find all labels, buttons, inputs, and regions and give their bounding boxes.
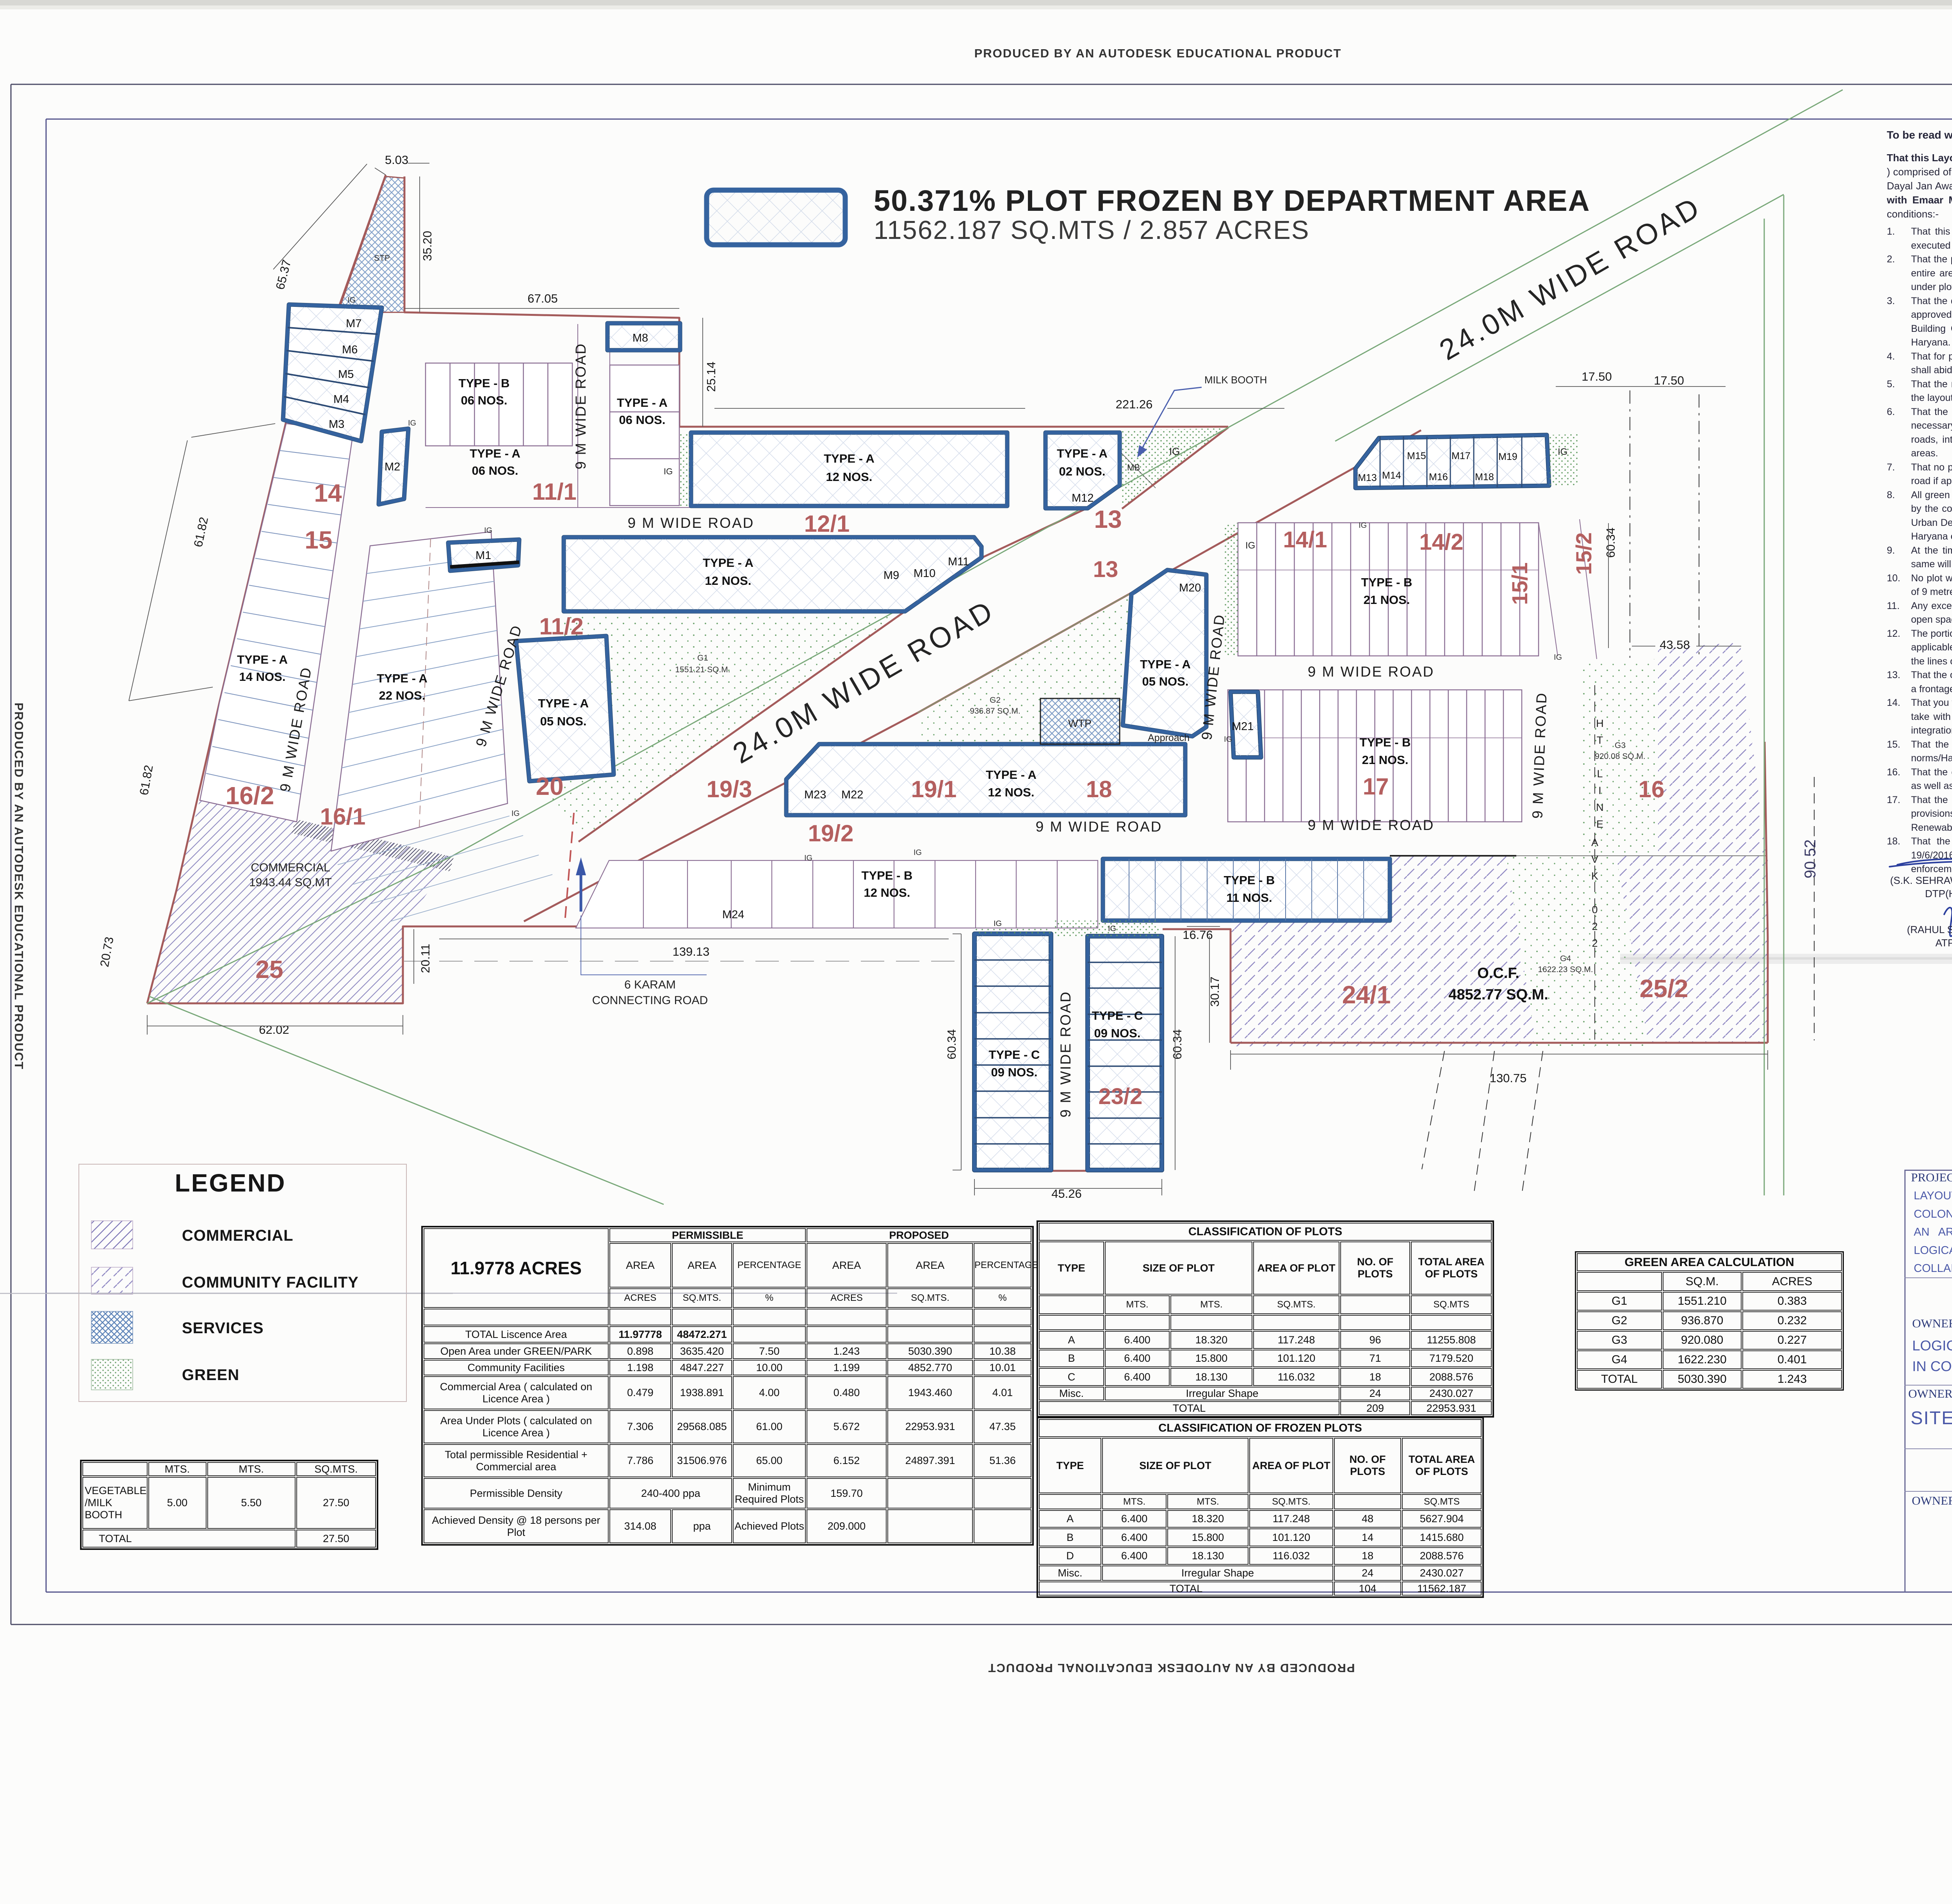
svg-text:45.26: 45.26 [1051,1187,1082,1200]
svg-text:TYPE - A: TYPE - A [703,556,753,570]
svg-text:14/2: 14/2 [1419,529,1464,555]
svg-text:IG: IG [1554,653,1562,662]
svg-text:TYPE - A: TYPE - A [1140,657,1191,671]
svg-text:M20: M20 [1179,582,1201,594]
svg-text:15/1: 15/1 [1507,563,1532,605]
svg-text:TYPE - B: TYPE - B [1224,873,1275,887]
svg-text:V: V [1591,853,1598,865]
svg-text:MILK BOOTH: MILK BOOTH [1204,374,1267,386]
svg-text:TYPE - A: TYPE - A [377,671,427,685]
svg-text:TYPE - B: TYPE - B [862,869,913,882]
svg-text:M4: M4 [333,393,349,406]
svg-text:30.17: 30.17 [1208,976,1222,1007]
svg-text:T: T [1597,734,1603,746]
svg-text:TYPE - A: TYPE - A [538,696,589,710]
svg-text:E: E [1596,818,1603,830]
svg-text:PRODUCED BY AN AUTODESK EDUCAT: PRODUCED BY AN AUTODESK EDUCATIONAL PROD… [988,1661,1355,1675]
svg-text:IG: IG [1108,924,1116,933]
svg-text:16/2: 16/2 [226,782,274,810]
svg-text:05 NOS.: 05 NOS. [540,714,587,728]
svg-text:M12: M12 [1072,492,1094,504]
svg-text:14/1: 14/1 [1283,527,1327,552]
svg-text:TYPE - A: TYPE - A [470,447,520,460]
svg-text:M6: M6 [342,344,358,356]
svg-text:M8: M8 [632,332,648,344]
svg-text:IG: IG [994,919,1002,928]
svg-text:G2: G2 [990,696,1001,705]
svg-text:1551.21 SQ.M.: 1551.21 SQ.M. [675,665,730,674]
svg-text:11 NOS.: 11 NOS. [1226,891,1272,905]
svg-text:18: 18 [1086,776,1112,802]
svg-text:M16: M16 [1429,472,1448,483]
svg-text:TYPE - A: TYPE - A [617,396,668,410]
svg-text:COMMERCIAL: COMMERCIAL [251,861,330,874]
svg-text:M17: M17 [1452,451,1471,461]
svg-text:06 NOS.: 06 NOS. [461,394,508,407]
svg-text:1622.23 SQ.M.: 1622.23 SQ.M. [1538,965,1593,974]
svg-text:9 M WIDE ROAD: 9 M WIDE ROAD [1308,664,1435,680]
svg-text:21 NOS.: 21 NOS. [1362,753,1409,767]
svg-text:12 NOS.: 12 NOS. [705,574,752,588]
svg-text:TYPE - A: TYPE - A [1057,447,1108,460]
svg-text:0: 0 [1592,904,1598,915]
svg-text:9 M WIDE ROAD: 9 M WIDE ROAD [1308,817,1435,833]
svg-text:6 KARAM: 6 KARAM [624,978,676,991]
svg-text:M1: M1 [476,549,491,562]
svg-text:TYPE - A: TYPE - A [237,653,288,666]
svg-text:PRODUCED BY AN AUTODESK EDUCAT: PRODUCED BY AN AUTODESK EDUCATIONAL PROD… [974,46,1342,60]
svg-text:IG: IG [804,854,812,862]
svg-text:IG: IG [1245,540,1255,551]
svg-text:TYPE - B: TYPE - B [1360,736,1411,749]
svg-text:936.87 SQ.M.: 936.87 SQ.M. [970,707,1021,716]
svg-text:M11: M11 [948,556,969,568]
svg-text:139.13: 139.13 [673,945,710,958]
svg-text:K: K [1591,870,1598,882]
svg-text:IG: IG [408,419,416,427]
svg-text:11/1: 11/1 [532,479,576,505]
svg-text:9 M WIDE ROAD: 9 M WIDE ROAD [628,515,755,531]
svg-text:60.34: 60.34 [1604,527,1617,558]
svg-text:25.14: 25.14 [704,362,718,392]
svg-text:9 M WIDE ROAD: 9 M WIDE ROAD [573,343,589,470]
svg-text:4852.77 SQ.M.: 4852.77 SQ.M. [1448,987,1548,1003]
svg-text:M24: M24 [722,908,744,921]
svg-text:M14: M14 [1382,470,1401,481]
svg-text:STP: STP [374,254,390,263]
svg-text:MB: MB [1127,463,1140,472]
svg-text:22 NOS.: 22 NOS. [379,689,426,702]
svg-text:12 NOS.: 12 NOS. [988,785,1035,799]
svg-text:1943.44 SQ.MT: 1943.44 SQ.MT [249,876,332,889]
svg-text:M2: M2 [385,461,400,473]
svg-text:16: 16 [1639,776,1665,802]
svg-text:COMMERCIAL: COMMERCIAL [182,1227,294,1244]
svg-text:TYPE - A: TYPE - A [824,452,874,465]
svg-text:9 M WIDE ROAD: 9 M WIDE ROAD [1058,991,1074,1118]
svg-text:60.34: 60.34 [945,1029,958,1060]
svg-text:20: 20 [536,772,563,800]
svg-text:17.50: 17.50 [1582,370,1612,383]
svg-text:M5: M5 [338,368,354,381]
svg-text:A: A [1591,837,1598,848]
svg-text:24/1: 24/1 [1342,981,1391,1009]
svg-text:G3: G3 [1615,741,1626,750]
svg-text:21 NOS.: 21 NOS. [1364,593,1410,607]
svg-text:M3: M3 [329,418,344,431]
svg-text:M23: M23 [804,789,826,801]
svg-text:TYPE - A: TYPE - A [986,768,1037,782]
svg-text:09 NOS.: 09 NOS. [991,1065,1038,1079]
svg-text:TYPE - B: TYPE - B [459,376,510,390]
svg-text:N: N [1596,801,1604,813]
svg-text:O.C.F.: O.C.F. [1477,965,1519,981]
svg-text:16/1: 16/1 [320,803,366,830]
svg-text:Approach: Approach [1148,732,1190,743]
svg-text:2: 2 [1592,937,1598,949]
svg-text:14 NOS.: 14 NOS. [239,670,286,684]
svg-text:5.03: 5.03 [385,153,408,167]
svg-text:IG: IG [347,296,356,305]
svg-text:M15: M15 [1407,451,1426,461]
svg-text:15/2: 15/2 [1571,533,1596,575]
svg-text:67.05: 67.05 [527,292,558,305]
svg-text:IG: IG [1558,447,1567,457]
svg-text:IG: IG [664,467,673,476]
svg-text:19/1: 19/1 [911,776,957,802]
svg-text:14: 14 [314,479,342,507]
svg-text:130.75: 130.75 [1490,1071,1527,1085]
svg-text:2: 2 [1592,921,1598,932]
svg-text:920.08 SQ.M.: 920.08 SQ.M. [1595,752,1646,761]
svg-text:06 NOS.: 06 NOS. [619,413,666,427]
svg-text:11562.187 SQ.MTS / 2.857 ACRES: 11562.187 SQ.MTS / 2.857 ACRES [874,216,1309,245]
svg-text:GREEN: GREEN [182,1366,239,1384]
svg-text:PRODUCED BY AN AUTODESK EDUCAT: PRODUCED BY AN AUTODESK EDUCATIONAL PROD… [12,703,26,1070]
svg-text:25: 25 [255,955,283,983]
svg-text:TYPE - C: TYPE - C [1092,1009,1143,1022]
svg-text:50.371% PLOT FROZEN BY DEPARTM: 50.371% PLOT FROZEN BY DEPARTMENT AREA [874,184,1590,217]
svg-text:LEGEND: LEGEND [175,1169,286,1197]
svg-text:M21: M21 [1232,720,1254,733]
svg-text:M19: M19 [1498,451,1517,462]
svg-text:12 NOS.: 12 NOS. [826,470,873,484]
svg-text:221.26: 221.26 [1116,397,1153,411]
svg-text:IG: IG [511,809,520,818]
svg-text:25/2: 25/2 [1640,974,1688,1003]
svg-text:L: L [1597,768,1603,780]
svg-text:62.02: 62.02 [259,1023,289,1037]
svg-text:19/3: 19/3 [707,776,752,802]
svg-text:M10: M10 [914,567,935,580]
svg-text:WTP: WTP [1068,718,1092,729]
svg-text:17: 17 [1363,773,1389,800]
svg-text:TYPE - B: TYPE - B [1361,575,1412,589]
svg-text:90 52: 90 52 [1802,839,1819,878]
svg-text:M13: M13 [1358,472,1377,483]
svg-text:43.58: 43.58 [1660,638,1690,652]
svg-text:TYPE - C: TYPE - C [989,1048,1040,1062]
svg-text:16.76: 16.76 [1183,928,1213,942]
svg-text:CONNECTING ROAD: CONNECTING ROAD [592,994,708,1007]
svg-text:I: I [1598,785,1601,796]
svg-text:19/2: 19/2 [808,820,854,846]
svg-text:15: 15 [305,526,332,554]
svg-text:20.11: 20.11 [419,944,432,973]
svg-text:13: 13 [1093,557,1118,582]
svg-text:13: 13 [1094,505,1122,533]
svg-text:23/2: 23/2 [1099,1084,1143,1109]
svg-text:M22: M22 [841,789,863,801]
svg-text:G1: G1 [697,654,708,663]
svg-text:12 NOS.: 12 NOS. [864,886,910,899]
svg-text:G4: G4 [1560,954,1571,963]
svg-text:M18: M18 [1475,472,1494,483]
svg-text:COMMUNITY FACILITY: COMMUNITY FACILITY [182,1274,359,1291]
svg-text:M9: M9 [883,569,899,582]
svg-text:H: H [1596,718,1604,729]
svg-text:9 M WIDE ROAD: 9 M WIDE ROAD [1036,819,1163,835]
svg-text:09 NOS.: 09 NOS. [1094,1026,1141,1040]
svg-text:IG: IG [1359,521,1367,530]
svg-text:17.50: 17.50 [1654,374,1684,387]
svg-text:11/2: 11/2 [539,613,583,639]
svg-text:IG: IG [1224,735,1232,744]
svg-text:IG: IG [484,526,492,535]
svg-text:60.34: 60.34 [1170,1029,1184,1060]
svg-text:02 NOS.: 02 NOS. [1059,465,1106,478]
svg-text:M7: M7 [346,317,362,330]
svg-text:35.20: 35.20 [420,231,434,261]
svg-text:IG: IG [914,848,922,857]
svg-text:12/1: 12/1 [804,511,850,537]
svg-text:06 NOS.: 06 NOS. [472,464,518,477]
svg-text:SERVICES: SERVICES [182,1320,264,1337]
svg-text:05 NOS.: 05 NOS. [1142,675,1189,688]
